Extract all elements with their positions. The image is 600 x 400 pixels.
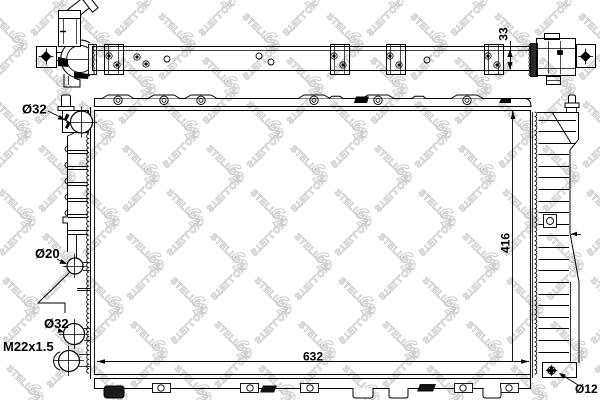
svg-text:Ø20: Ø20 (35, 246, 60, 261)
svg-text:Ø32: Ø32 (22, 102, 47, 117)
svg-text:33: 33 (497, 27, 511, 41)
svg-text:M22x1.5: M22x1.5 (3, 339, 54, 354)
svg-text:416: 416 (499, 233, 513, 253)
svg-text:632: 632 (303, 349, 323, 363)
svg-text:Ø12: Ø12 (575, 382, 598, 396)
svg-text:Ø32: Ø32 (44, 316, 69, 331)
